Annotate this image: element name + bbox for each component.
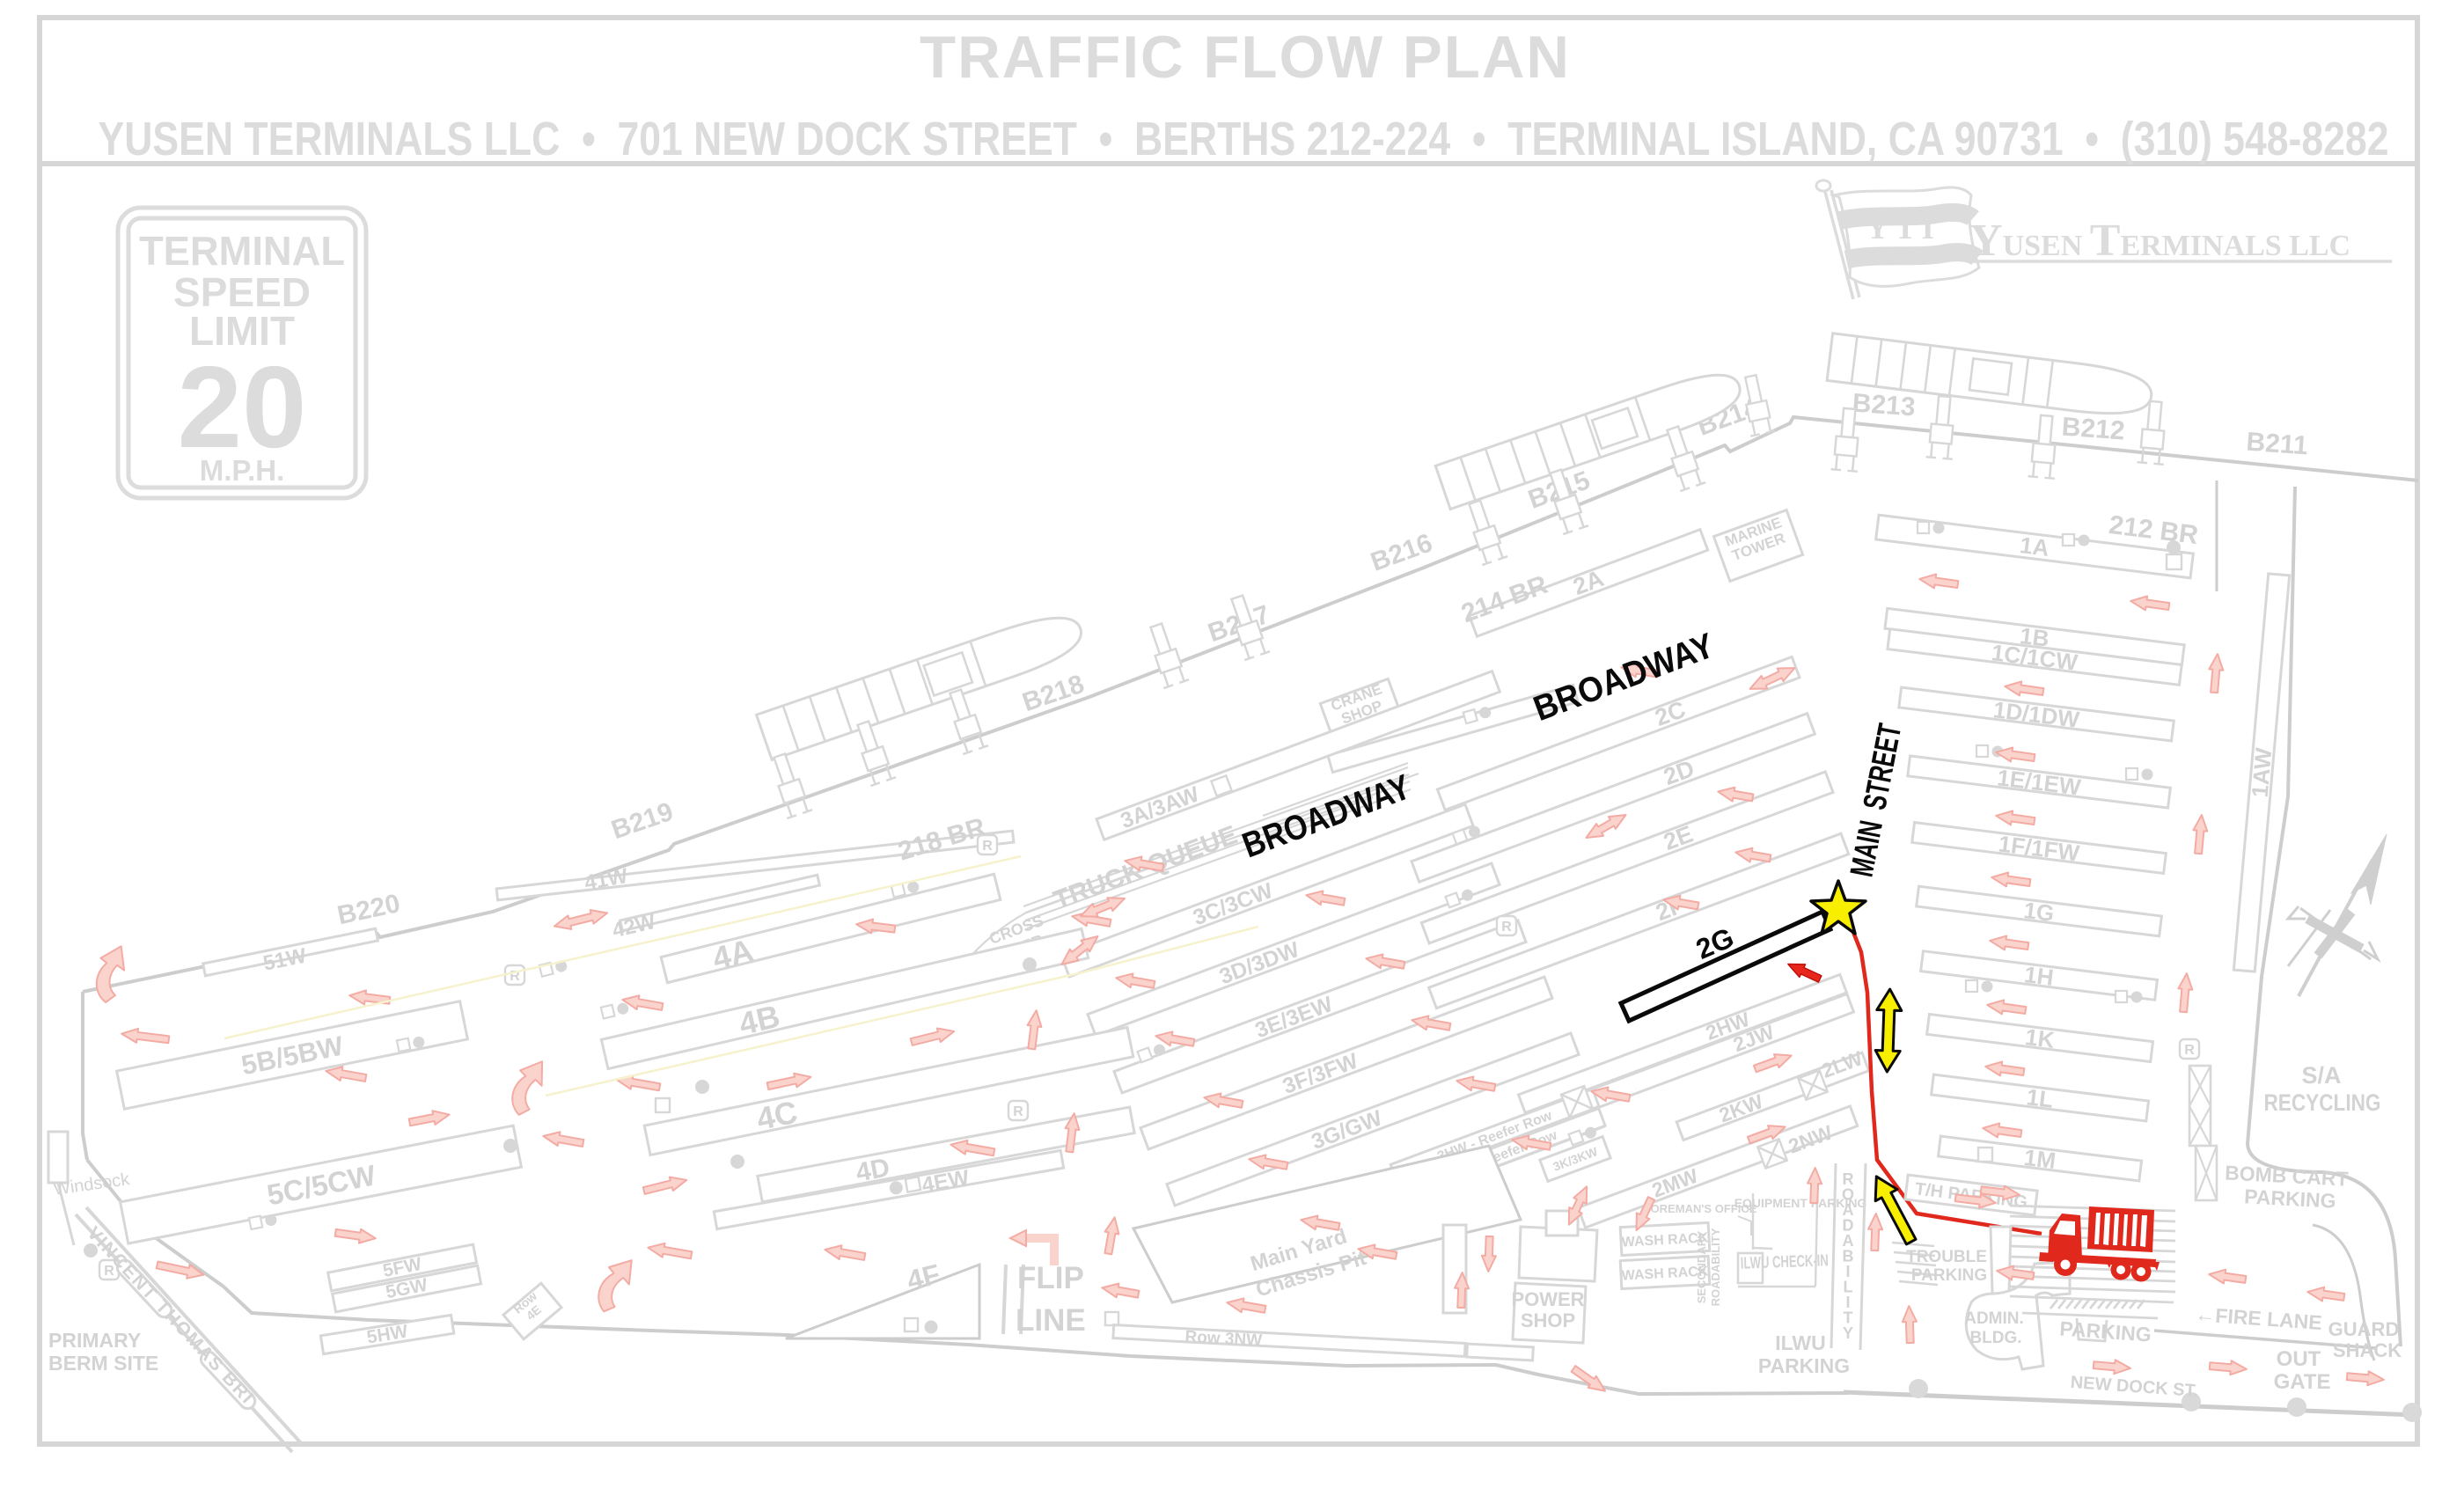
svg-text:ROADABILITY: ROADABILITY [1709,1228,1722,1306]
svg-text:PARKING: PARKING [1758,1354,1850,1377]
svg-text:TERMINAL: TERMINAL [139,228,345,274]
svg-text:ADMIN.: ADMIN. [1964,1309,2024,1328]
svg-text:LINE: LINE [1016,1303,1086,1338]
svg-text:BLDG.: BLDG. [1969,1329,2021,1347]
svg-text:PARKING: PARKING [1911,1266,1987,1285]
svg-text:PARKING: PARKING [2244,1184,2337,1212]
svg-text:B211: B211 [2246,428,2309,461]
svg-text:1AW: 1AW [2247,746,2277,798]
svg-text:R: R [1501,920,1512,935]
svg-text:M.P.H.: M.P.H. [200,454,285,487]
svg-text:YUSEN TERMINALS LLC • 701 NE: YUSEN TERMINALS LLC • 701 NEW DOCK STREE… [99,113,2389,165]
svg-text:1L: 1L [2025,1083,2055,1112]
svg-text:1G: 1G [2022,897,2056,927]
svg-text:1H: 1H [2023,961,2056,991]
svg-text:B213: B213 [1852,389,1917,422]
svg-text:OUT: OUT [2277,1347,2321,1371]
svg-text:POWER: POWER [1511,1288,1584,1310]
svg-text:BERM SITE: BERM SITE [48,1352,158,1375]
svg-text:PRIMARY: PRIMARY [48,1329,141,1352]
svg-text:ILWU CHECK-IN: ILWU CHECK-IN [1740,1251,1829,1272]
svg-text:FLIP: FLIP [1017,1261,1084,1295]
svg-text:R: R [1013,1104,1023,1119]
svg-text:B212: B212 [2061,413,2126,446]
svg-text:ILWU: ILWU [1775,1331,1826,1354]
svg-text:R: R [982,839,993,854]
svg-text:1K: 1K [2024,1023,2057,1053]
svg-text:SHOP: SHOP [1521,1309,1575,1331]
svg-text:GATE: GATE [2274,1370,2331,1394]
svg-text:ROADABILITY: ROADABILITY [1842,1170,1854,1342]
svg-text:YTI: YTI [1866,210,1940,246]
svg-text:TRAFFIC FLOW PLAN: TRAFFIC FLOW PLAN [920,24,1571,91]
svg-text:1M: 1M [2022,1144,2057,1174]
svg-text:TROUBLE: TROUBLE [1906,1248,1987,1266]
svg-text:1A: 1A [2019,532,2051,561]
svg-text:20: 20 [178,342,307,472]
svg-text:S/A: S/A [2301,1062,2341,1089]
svg-text:GUARD: GUARD [2328,1318,2400,1340]
svg-text:R: R [2184,1043,2195,1058]
svg-text:SECONDARY: SECONDARY [1695,1230,1708,1303]
svg-text:RECYCLING: RECYCLING [2264,1089,2381,1116]
svg-text:SHACK: SHACK [2333,1339,2402,1361]
